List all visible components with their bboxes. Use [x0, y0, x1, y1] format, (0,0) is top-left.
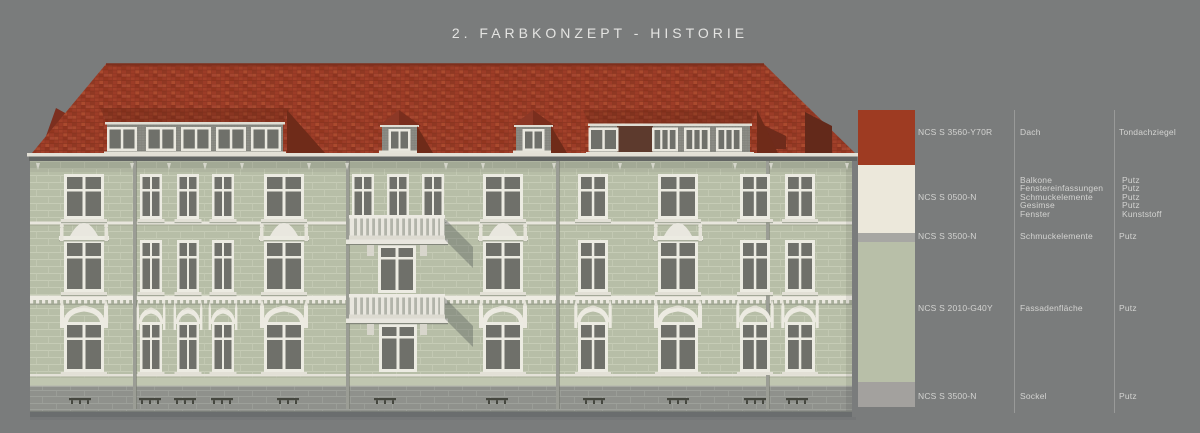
swatch-sockel [858, 382, 915, 407]
ncs-code: NCS S 3560-Y70R [918, 128, 992, 136]
facade [30, 161, 856, 420]
legend-divider-1 [1014, 110, 1015, 413]
material-list: Putz [1119, 304, 1137, 312]
component-list: Dach [1020, 128, 1041, 136]
building-elevation [0, 0, 870, 433]
component-list: Schmuckelemente [1020, 232, 1093, 240]
roof [27, 64, 859, 161]
material-list: Putz [1119, 232, 1137, 240]
swatch-schmuckelemente-hell [858, 165, 915, 233]
slide-canvas: 2. FARBKONZEPT - HISTORIE [0, 0, 1200, 433]
material-list: Putz Putz Putz Putz Kunststoff [1122, 176, 1162, 218]
ncs-code: NCS S 2010-G40Y [918, 304, 993, 312]
legend-swatch-column [858, 110, 915, 407]
swatch-fassade [858, 242, 915, 382]
component-list: Balkone Fenstereinfassungen Schmuckeleme… [1020, 176, 1103, 218]
material-list: Putz [1119, 392, 1137, 400]
ncs-code: NCS S 0500-N [918, 193, 977, 201]
material-list: Tondachziegel [1119, 128, 1176, 136]
component-list: Fassadenfläche [1020, 304, 1083, 312]
component-list: Sockel [1020, 392, 1047, 400]
legend-divider-2 [1114, 110, 1115, 413]
swatch-dach [858, 110, 915, 165]
ncs-code: NCS S 3500-N [918, 392, 977, 400]
dormer-long-left [100, 108, 325, 154]
ncs-code: NCS S 3500-N [918, 232, 977, 240]
swatch-schmuckelemente-grau [858, 233, 915, 242]
dormer-long-right [583, 110, 778, 155]
